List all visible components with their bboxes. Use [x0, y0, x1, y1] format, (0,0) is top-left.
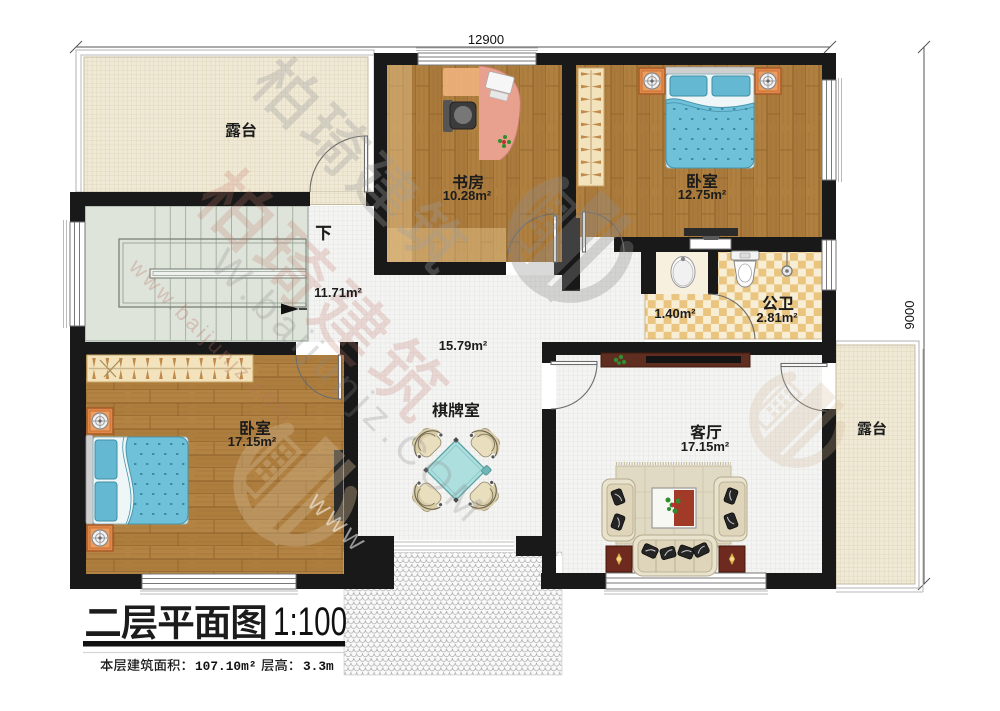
svg-text:15.79m²: 15.79m² [439, 338, 488, 353]
svg-text:12900: 12900 [468, 32, 504, 47]
svg-text:11.71m²: 11.71m² [314, 285, 362, 300]
svg-text:2.81m²: 2.81m² [756, 310, 798, 325]
svg-text:17.15m²: 17.15m² [228, 434, 277, 449]
svg-text:3.3m: 3.3m [303, 659, 334, 674]
svg-text:1:100: 1:100 [273, 600, 347, 644]
svg-text:10.28m²: 10.28m² [443, 188, 492, 203]
svg-text:12.75m²: 12.75m² [678, 187, 727, 202]
svg-text:1.40m²: 1.40m² [654, 306, 696, 321]
svg-text:17.15m²: 17.15m² [681, 439, 730, 454]
svg-text:107.10m²: 107.10m² [195, 659, 256, 674]
svg-text:9000: 9000 [902, 301, 917, 330]
